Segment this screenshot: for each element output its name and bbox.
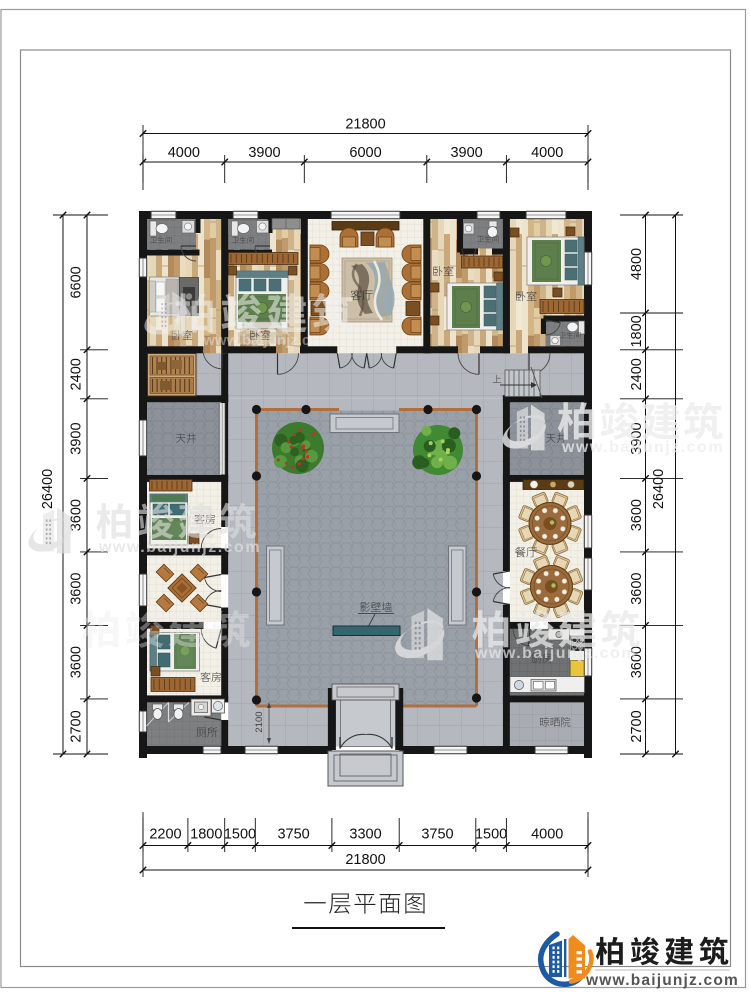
svg-text:1800: 1800 xyxy=(190,827,222,843)
svg-text:3900: 3900 xyxy=(248,145,280,161)
svg-text:www.baijunjz.com: www.baijunjz.com xyxy=(202,332,332,349)
svg-text:2100: 2100 xyxy=(254,711,265,732)
svg-text:3600: 3600 xyxy=(629,573,645,605)
svg-text:2700: 2700 xyxy=(68,710,84,742)
svg-text:6600: 6600 xyxy=(68,266,84,298)
svg-text:4000: 4000 xyxy=(168,145,200,161)
svg-text:2400: 2400 xyxy=(68,358,84,390)
svg-text:4000: 4000 xyxy=(531,145,563,161)
svg-text:2700: 2700 xyxy=(629,710,645,742)
svg-text:3300: 3300 xyxy=(349,827,381,843)
svg-text:3750: 3750 xyxy=(421,827,453,843)
svg-text:4800: 4800 xyxy=(629,248,645,280)
svg-text:3600: 3600 xyxy=(68,499,84,531)
svg-text:1800: 1800 xyxy=(629,315,645,347)
svg-text:www.baijunjz.com: www.baijunjz.com xyxy=(474,645,637,662)
svg-text:4000: 4000 xyxy=(531,827,563,843)
svg-text:21800: 21800 xyxy=(345,117,385,133)
svg-text:www.baijunjz.com: www.baijunjz.com xyxy=(561,439,724,456)
svg-text:1500: 1500 xyxy=(224,827,256,843)
svg-text:26400: 26400 xyxy=(40,469,56,509)
svg-text:www.baijunjz.com: www.baijunjz.com xyxy=(98,539,261,556)
svg-text:2400: 2400 xyxy=(629,358,645,390)
svg-text:26400: 26400 xyxy=(651,469,667,509)
svg-text:21800: 21800 xyxy=(345,852,385,868)
svg-text:2200: 2200 xyxy=(149,827,181,843)
svg-text:3600: 3600 xyxy=(629,499,645,531)
svg-text:3600: 3600 xyxy=(68,646,84,678)
svg-text:3750: 3750 xyxy=(277,827,309,843)
svg-text:6000: 6000 xyxy=(349,145,381,161)
svg-text:3600: 3600 xyxy=(68,573,84,605)
svg-text:www.baijunjz.com: www.baijunjz.com xyxy=(585,972,739,989)
svg-text:3900: 3900 xyxy=(68,422,84,454)
svg-text:1500: 1500 xyxy=(475,827,507,843)
svg-text:3900: 3900 xyxy=(450,145,482,161)
